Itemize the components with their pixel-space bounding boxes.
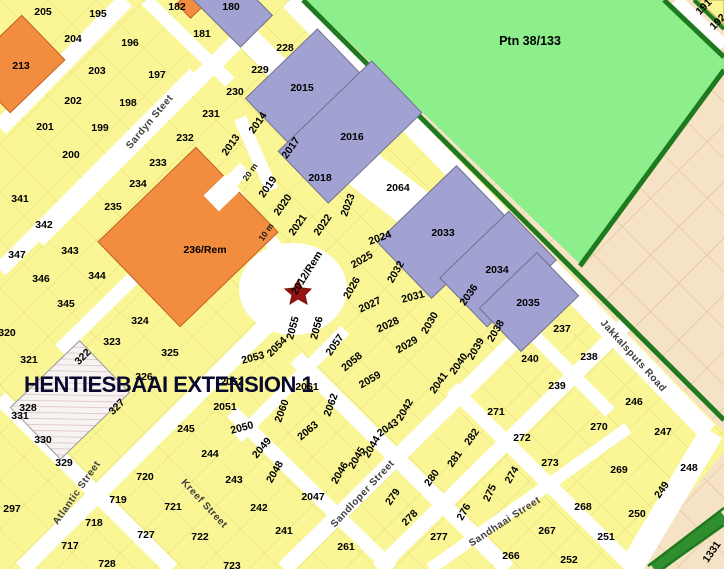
parcel-label-330: 330	[34, 434, 52, 446]
parcel-label-2043: 2043	[375, 416, 401, 439]
parcel-label-234: 234	[129, 178, 147, 190]
parcel-label-2048: 2048	[264, 459, 286, 485]
parcel-label-248: 248	[680, 462, 698, 474]
parcel-label-2046: 2046	[329, 460, 351, 486]
parcel-label-321: 321	[20, 354, 38, 366]
parcel-label-721: 721	[164, 501, 182, 513]
parcel-label-2042: 2042	[394, 397, 416, 423]
parcel-label-245: 245	[177, 423, 195, 435]
parcel-label-331: 331	[11, 410, 29, 422]
parcel-label-268: 268	[574, 501, 592, 513]
parcel-label-182: 182	[168, 1, 186, 13]
parcel-label-719: 719	[109, 494, 127, 506]
parcel-label-261: 261	[337, 541, 355, 553]
parcel-label-229: 229	[251, 64, 269, 76]
parcel-label-723: 723	[223, 560, 241, 569]
parcel-label-345: 345	[57, 298, 75, 310]
parcel-label-280: 280	[422, 467, 442, 488]
parcel-label-198: 198	[119, 97, 137, 109]
parcel-label-204: 204	[64, 33, 82, 45]
parcel-label-276: 276	[454, 501, 473, 522]
parcel-label-201: 201	[36, 121, 54, 133]
parcel-label-325: 325	[161, 347, 179, 359]
parcel-label-243: 243	[225, 474, 243, 486]
parcel-label-2062: 2062	[321, 392, 340, 418]
road-width-annotation: 20 m	[240, 161, 259, 183]
map-labels-layer: 2051951821802041961812282292302312322332…	[0, 0, 724, 569]
parcel-label-270: 270	[590, 421, 608, 433]
parcel-label-191: 191	[694, 0, 715, 17]
street-label-kreef-street: Kreef Street	[179, 477, 230, 530]
parcel-label-251: 251	[597, 531, 615, 543]
parcel-label-237: 237	[553, 323, 571, 335]
parcel-label-344: 344	[88, 270, 106, 282]
parcel-label-2058: 2058	[339, 350, 365, 374]
parcel-label-252: 252	[560, 554, 578, 566]
map-title: HENTIESBAAI EXTENSION 1	[24, 372, 313, 398]
parcel-label-231: 231	[202, 108, 220, 120]
parcel-label-240: 240	[521, 353, 539, 365]
road-width-annotation: 10 m	[256, 221, 275, 243]
parcel-label-278: 278	[400, 508, 421, 529]
parcel-label-213: 213	[12, 60, 30, 72]
parcel-label-2029: 2029	[394, 334, 420, 356]
parcel-label-2020: 2020	[271, 192, 294, 218]
cadastral-map-canvas[interactable]: 2051951821802041961812282292302312322332…	[0, 0, 724, 569]
parcel-label-279: 279	[383, 486, 403, 507]
parcel-label-2056: 2056	[308, 315, 326, 341]
parcel-label-323: 323	[103, 336, 121, 348]
parcel-label-2064: 2064	[386, 182, 409, 194]
parcel-label-2026: 2026	[341, 275, 363, 301]
parcel-label-2063: 2063	[295, 419, 321, 443]
parcel-label-196: 196	[121, 37, 139, 49]
parcel-label-2018: 2018	[308, 172, 331, 184]
parcel-label-2059: 2059	[357, 369, 383, 391]
parcel-label-2053: 2053	[240, 349, 266, 367]
parcel-label-720: 720	[136, 471, 154, 483]
parcel-label-2014: 2014	[246, 110, 269, 136]
parcel-label-180: 180	[222, 1, 240, 13]
parcel-label-341: 341	[11, 193, 29, 205]
parcel-label-2022: 2022	[311, 212, 334, 238]
parcel-label-267: 267	[538, 525, 556, 537]
parcel-label-205: 205	[34, 6, 52, 18]
parcel-label-181: 181	[193, 28, 211, 40]
parcel-label-195: 195	[89, 8, 107, 20]
parcel-label-297: 297	[3, 503, 21, 515]
parcel-label-2012-Rem: 2012/Rem	[289, 249, 325, 297]
parcel-label-2035: 2035	[516, 297, 539, 309]
parcel-label-249: 249	[652, 479, 672, 500]
parcel-label-241: 241	[275, 525, 293, 537]
parcel-label-272: 272	[513, 432, 531, 444]
street-label-sandhaai-street: Sandhaai Street	[467, 495, 543, 549]
parcel-label-244: 244	[201, 448, 219, 460]
parcel-label-2017: 2017	[279, 135, 302, 161]
parcel-label-2057: 2057	[323, 332, 346, 358]
parcel-label-2049: 2049	[250, 435, 274, 461]
parcel-label-2013: 2013	[219, 132, 242, 158]
parcel-label-2034: 2034	[485, 264, 508, 276]
street-label-jakkalsputs-road: Jakkalsputs Road	[598, 318, 668, 395]
parcel-label-275: 275	[481, 483, 499, 504]
parcel-label-277: 277	[430, 531, 448, 543]
parcel-label-246: 246	[625, 396, 643, 408]
parcel-label-199: 199	[91, 122, 109, 134]
parcel-label-200: 200	[62, 149, 80, 161]
parcel-label-232: 232	[176, 132, 194, 144]
parcel-label-236-Rem: 236/Rem	[183, 244, 226, 256]
parcel-label-346: 346	[32, 273, 50, 285]
parcel-label-2040: 2040	[447, 351, 470, 377]
open-space-label: Ptn 38/133	[499, 34, 561, 48]
parcel-label-718: 718	[85, 517, 103, 529]
parcel-label-717: 717	[61, 540, 79, 552]
parcel-label-242: 242	[250, 502, 268, 514]
parcel-label-2032: 2032	[385, 259, 407, 285]
parcel-label-324: 324	[131, 315, 149, 327]
parcel-label-202: 202	[64, 95, 82, 107]
parcel-label-2025: 2025	[349, 249, 375, 271]
parcel-label-1331: 1331	[700, 539, 723, 565]
parcel-label-2021: 2021	[286, 212, 309, 238]
parcel-label-273: 273	[541, 457, 559, 469]
parcel-label-197: 197	[148, 69, 166, 81]
parcel-label-192: 192	[708, 12, 724, 33]
parcel-label-2031: 2031	[400, 288, 426, 306]
parcel-label-2024: 2024	[367, 228, 393, 247]
parcel-label-250: 250	[628, 508, 646, 520]
parcel-label-228: 228	[276, 42, 294, 54]
parcel-label-2015: 2015	[290, 82, 313, 94]
parcel-label-322: 322	[73, 347, 94, 368]
parcel-label-728: 728	[98, 558, 116, 569]
parcel-label-2030: 2030	[419, 310, 441, 336]
parcel-label-230: 230	[226, 86, 244, 98]
parcel-label-2047: 2047	[301, 491, 324, 503]
parcel-label-2016: 2016	[340, 131, 363, 143]
parcel-label-727: 727	[137, 529, 155, 541]
parcel-label-239: 239	[548, 380, 566, 392]
parcel-label-238: 238	[580, 351, 598, 363]
parcel-label-722: 722	[191, 531, 209, 543]
parcel-label-2041: 2041	[427, 370, 450, 396]
parcel-label-329: 329	[55, 457, 73, 469]
parcel-label-343: 343	[61, 245, 79, 257]
parcel-label-2036: 2036	[457, 282, 480, 308]
parcel-label-266: 266	[502, 550, 520, 562]
parcel-label-2023: 2023	[338, 192, 357, 218]
parcel-label-2027: 2027	[357, 295, 383, 316]
parcel-label-269: 269	[610, 464, 628, 476]
parcel-label-203: 203	[88, 65, 106, 77]
parcel-label-282: 282	[462, 426, 482, 447]
parcel-label-2060: 2060	[272, 398, 291, 424]
parcel-label-2019: 2019	[256, 174, 279, 200]
parcel-label-2033: 2033	[431, 227, 454, 239]
parcel-label-2050: 2050	[229, 419, 255, 437]
parcel-label-2055: 2055	[284, 315, 302, 341]
parcel-label-2028: 2028	[375, 315, 401, 336]
parcel-label-2051: 2051	[213, 401, 236, 413]
parcel-label-235: 235	[104, 201, 122, 213]
parcel-label-2038: 2038	[485, 318, 507, 344]
parcel-label-320: 320	[0, 327, 16, 339]
parcel-label-342: 342	[35, 219, 53, 231]
parcel-label-281: 281	[445, 448, 465, 469]
parcel-label-274: 274	[502, 464, 521, 485]
parcel-label-271: 271	[487, 406, 505, 418]
parcel-label-247: 247	[654, 426, 672, 438]
parcel-label-347: 347	[8, 249, 26, 261]
parcel-label-233: 233	[149, 157, 167, 169]
parcel-label-327: 327	[107, 397, 128, 418]
